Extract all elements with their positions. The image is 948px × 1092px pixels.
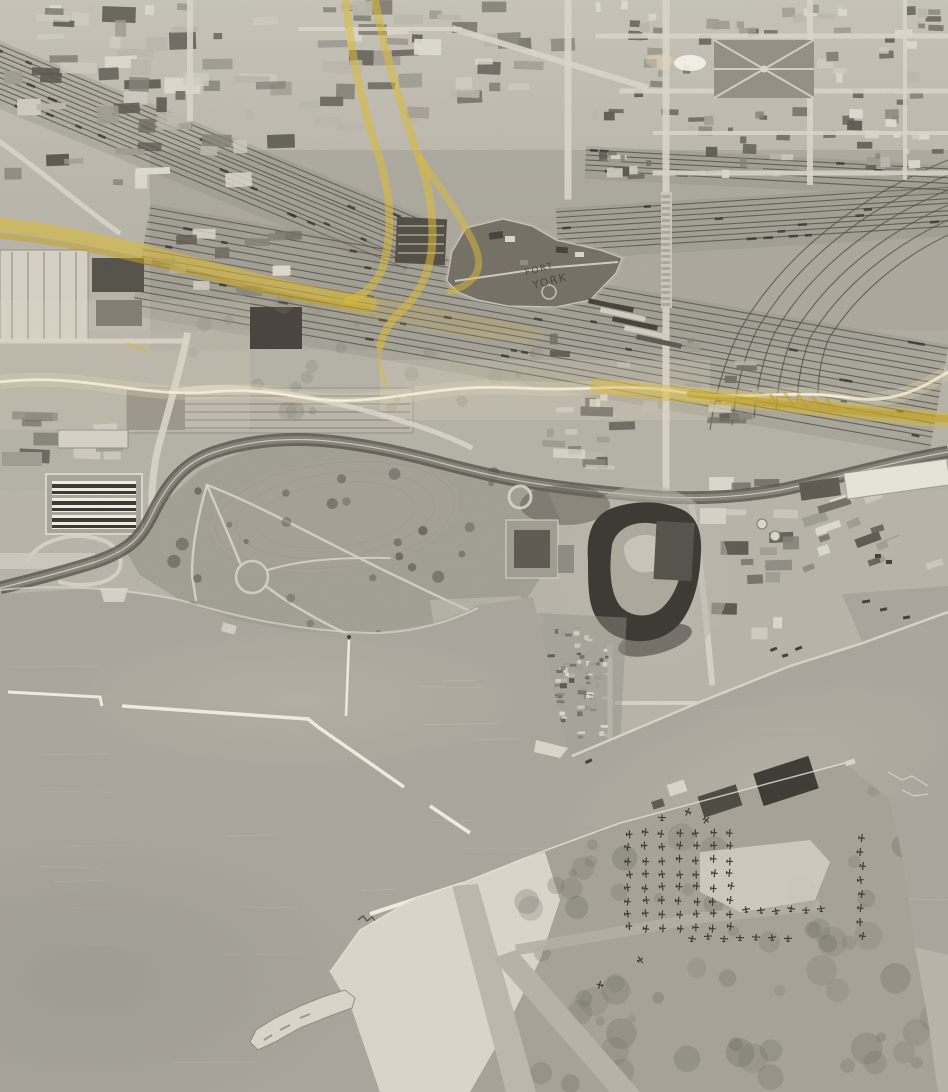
sepia-veil <box>0 0 948 1092</box>
aerial-photo: FORT YORK <box>0 0 948 1092</box>
